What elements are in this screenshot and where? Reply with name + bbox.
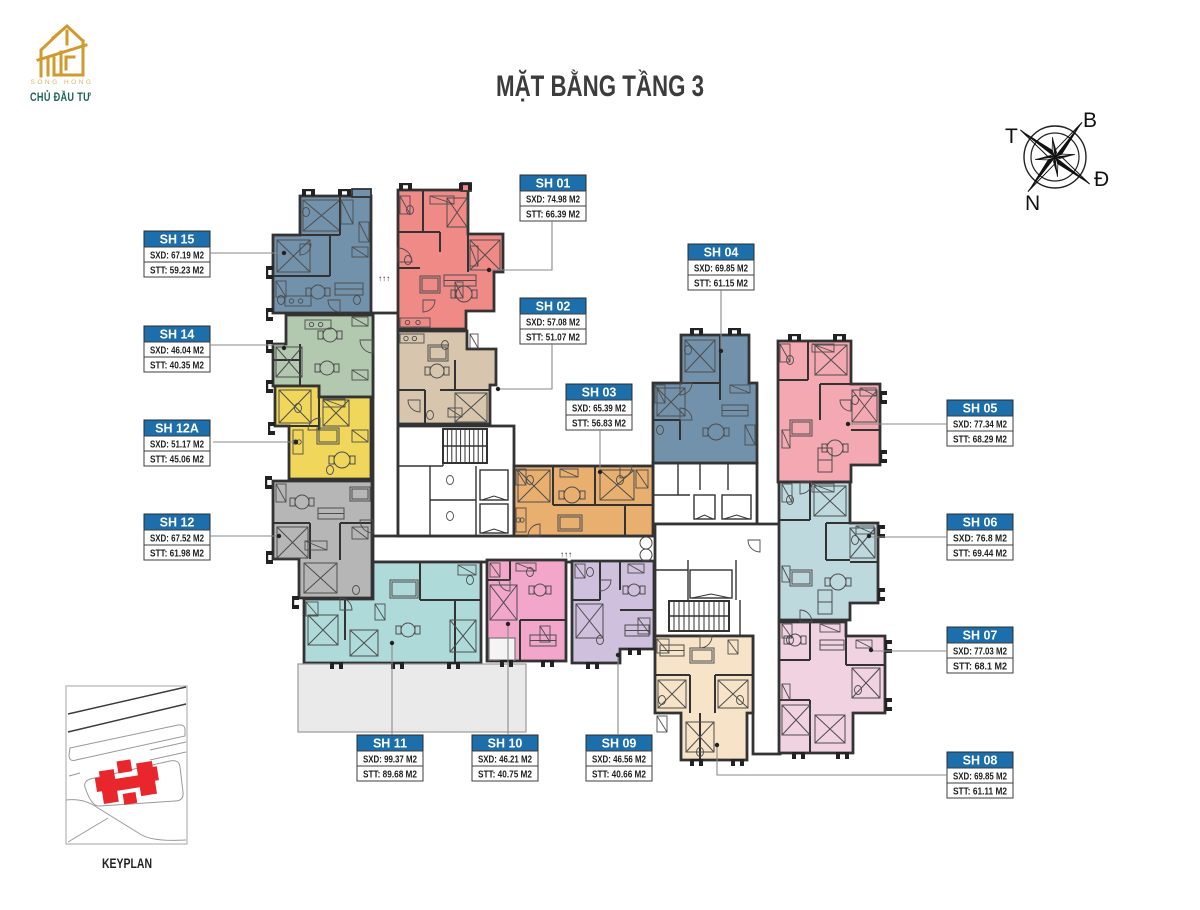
svg-text:SXD: 77.34 M2: SXD: 77.34 M2 xyxy=(953,420,1007,431)
svg-text:SXD: 67.52 M2: SXD: 67.52 M2 xyxy=(150,534,204,545)
svg-text:SXD: 69.85 M2: SXD: 69.85 M2 xyxy=(953,772,1007,783)
svg-text:STT: 59.23 M2: STT: 59.23 M2 xyxy=(150,266,204,277)
svg-text:↑↑↑: ↑↑↑ xyxy=(560,550,572,559)
svg-text:SXD: 46.21 M2: SXD: 46.21 M2 xyxy=(478,755,532,766)
svg-text:STT: 61.15 M2: STT: 61.15 M2 xyxy=(694,279,748,290)
svg-text:STT: 40.66 M2: STT: 40.66 M2 xyxy=(592,770,646,781)
svg-text:SH 08: SH 08 xyxy=(963,754,998,768)
svg-text:B: B xyxy=(1083,109,1097,132)
svg-text:SH 05: SH 05 xyxy=(963,402,998,416)
svg-text:SXD: 69.85 M2: SXD: 69.85 M2 xyxy=(694,264,748,275)
svg-text:STT: 40.75 M2: STT: 40.75 M2 xyxy=(478,770,532,781)
svg-text:SH 03: SH 03 xyxy=(582,386,617,400)
svg-text:N: N xyxy=(1025,192,1040,215)
svg-text:SH 10: SH 10 xyxy=(488,737,523,751)
svg-text:SXD: 99.37 M2: SXD: 99.37 M2 xyxy=(363,755,417,766)
svg-text:SXD: 46.56 M2: SXD: 46.56 M2 xyxy=(592,755,646,766)
svg-text:T: T xyxy=(1005,125,1018,148)
svg-text:STT: 69.44 M2: STT: 69.44 M2 xyxy=(953,549,1007,560)
svg-text:STT: 89.68 M2: STT: 89.68 M2 xyxy=(363,770,417,781)
svg-text:SH 12: SH 12 xyxy=(160,516,195,530)
svg-text:SH 11: SH 11 xyxy=(373,737,407,751)
svg-text:SH 14: SH 14 xyxy=(160,328,195,342)
svg-text:STT: 45.06 M2: STT: 45.06 M2 xyxy=(150,455,204,466)
svg-text:CHỦ ĐẦU TƯ: CHỦ ĐẦU TƯ xyxy=(30,89,91,104)
svg-text:STT: 40.35 M2: STT: 40.35 M2 xyxy=(150,361,204,372)
svg-text:SH 02: SH 02 xyxy=(536,300,571,314)
svg-text:SH 12A: SH 12A xyxy=(155,422,199,436)
svg-text:STT: 68.1 M2: STT: 68.1 M2 xyxy=(953,662,1007,673)
svg-text:STT: 56.83 M2: STT: 56.83 M2 xyxy=(572,419,626,430)
svg-text:↑↑↑: ↑↑↑ xyxy=(378,274,390,283)
svg-text:SXD: 77.03 M2: SXD: 77.03 M2 xyxy=(953,647,1007,658)
svg-text:SXD: 57.08 M2: SXD: 57.08 M2 xyxy=(526,318,580,329)
svg-text:SONG HONG: SONG HONG xyxy=(31,79,94,86)
svg-text:KEYPLAN: KEYPLAN xyxy=(102,856,152,871)
svg-text:SH 01: SH 01 xyxy=(536,177,571,191)
svg-text:SXD: 76.8 M2: SXD: 76.8 M2 xyxy=(953,534,1007,545)
svg-text:SXD: 74.98 M2: SXD: 74.98 M2 xyxy=(526,195,580,206)
svg-text:SH 15: SH 15 xyxy=(160,233,195,247)
svg-text:STT: 51.07 M2: STT: 51.07 M2 xyxy=(526,333,580,344)
svg-text:STT: 68.29 M2: STT: 68.29 M2 xyxy=(953,435,1007,446)
svg-text:STT: 66.39 M2: STT: 66.39 M2 xyxy=(526,210,580,221)
svg-text:SH 09: SH 09 xyxy=(602,737,637,751)
svg-text:SXD: 46.04 M2: SXD: 46.04 M2 xyxy=(150,346,204,357)
svg-text:SH 07: SH 07 xyxy=(963,629,998,643)
svg-text:STT: 61.11 M2: STT: 61.11 M2 xyxy=(953,787,1007,798)
svg-text:MẶT BẰNG TẦNG 3: MẶT BẰNG TẦNG 3 xyxy=(496,69,704,103)
svg-text:SH 04: SH 04 xyxy=(704,246,739,260)
svg-text:STT: 61.98 M2: STT: 61.98 M2 xyxy=(150,549,204,560)
svg-text:SXD: 51.17 M2: SXD: 51.17 M2 xyxy=(150,440,204,451)
svg-text:SXD: 67.19 M2: SXD: 67.19 M2 xyxy=(150,251,204,262)
svg-text:SXD: 65.39 M2: SXD: 65.39 M2 xyxy=(572,404,626,415)
svg-text:SH 06: SH 06 xyxy=(963,516,998,530)
svg-text:Đ: Đ xyxy=(1094,168,1109,191)
